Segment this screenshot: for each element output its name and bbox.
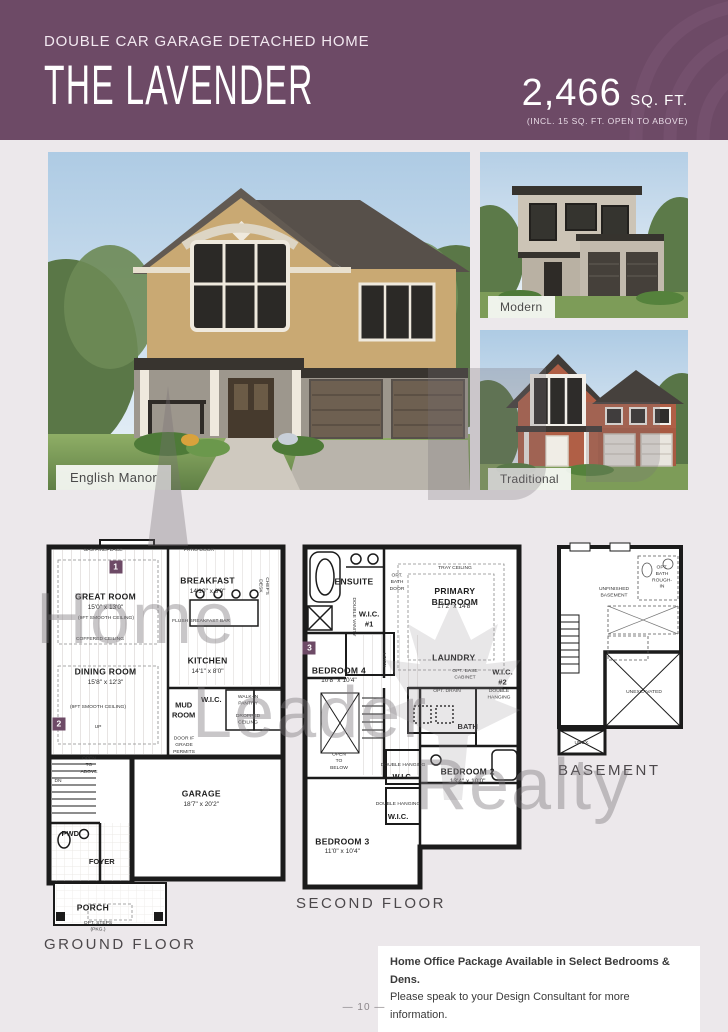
plan-label: OPT. BATH DOOR [390,573,405,592]
plan-label: UNFINISHED BASEMENT [599,587,629,600]
plan-label: FLUSH BREAKFAST BAR [172,619,230,625]
plan-label: TRAY CEILING [438,566,472,572]
plan-label: 1 [109,560,122,573]
plan-label: OPT. BATH ROUGH-IN [651,565,674,591]
plan-label: (9FT SMOOTH CEILING) [70,704,126,710]
plan-label: OPT. DRAIN [433,689,461,695]
plan-label: GAS FIREPLACE [83,548,122,554]
basement-caption: BASEMENT [558,762,661,779]
plan-label: W.I.C. [201,696,221,706]
sqft-unit: SQ. FT. [630,92,688,109]
plan-label: UNEX. [575,741,590,747]
plan-label: 3 [303,642,316,655]
plan-label: DN [54,779,61,785]
plan-label: DOUBLE HANGING [487,689,511,702]
plan-label: FOYER [89,857,115,867]
sqft-value: 2,466 [522,72,622,114]
ground-floor-caption: GROUND FLOOR [44,936,197,953]
note-line-1: Home Office Package Available in Select … [390,954,688,989]
plan-label: 14'1" x 8'0" [192,667,224,675]
plan-type-subtitle: DOUBLE CAR GARAGE DETACHED HOME [44,33,369,50]
sqft-note: (INCL. 15 SQ. FT. OPEN TO ABOVE) [527,116,688,126]
elevation-label: Traditional [488,468,571,490]
plan-label: 15'0" x 13'0" [88,604,124,612]
plan-label: PORCH [77,902,109,913]
modern-rendering: Modern [480,152,688,318]
second-floor-plan: ENSUITEOPT. BATH DOORTRAY CEILINGPRIMARY… [296,538,528,898]
ground-floor-labels: GAS FIREPLACEPATIO DOOR1GREAT ROOM15'0" … [40,538,292,938]
plan-label: DOUBLE HANGING [380,762,425,768]
plan-label: DINING ROOM [75,666,137,677]
plan-label: W.I.C. #2 [490,667,516,687]
english-manor-rendering: English Manor [48,152,470,490]
english-manor-illustration [48,152,470,490]
plan-label: PRIMARY BEDROOM [418,586,491,608]
modern-illustration [480,152,688,318]
plan-label: BEDROOM 4 [312,666,366,677]
page-title: THE LAVENDER [44,52,314,117]
plan-label: COFFERED CEILING [76,636,124,642]
plan-label: 13'4" x 10'0" [450,778,486,786]
page-number: — 10 — [0,1002,728,1013]
plan-label: BEDROOM 3 [315,836,369,847]
plan-label: 17'2" x 14'8" [437,603,473,611]
plan-label: MUD ROOM [172,700,195,720]
second-floor-labels: ENSUITEOPT. BATH DOORTRAY CEILINGPRIMARY… [296,538,528,898]
square-footage: 2,466 SQ. FT. [522,72,688,115]
plan-label: DROPPED CEILING [230,713,266,726]
plan-label: PATIO DOOR [184,548,214,554]
plan-label: LINEN [380,653,386,667]
plan-label: DOUBLE HANGING [376,802,421,808]
basement-plan: UNFINISHED BASEMENTOPT. BATH ROUGH-INUNE… [550,540,690,762]
plan-label: 14'10" x 8'0" [190,588,226,596]
plan-label: OPEN TO BELOW [330,752,348,771]
home-office-note: Home Office Package Available in Select … [378,946,700,1032]
traditional-rendering: Traditional [480,330,688,490]
plan-label: OPT. BASE CABINET [453,668,478,681]
plan-label: PWD [61,829,79,839]
plan-label: GARAGE [182,788,221,799]
second-floor-caption: SECOND FLOOR [296,895,446,912]
plan-label: 2 [52,717,65,730]
plan-label: CHEF'S DESK [257,574,270,598]
plan-label: BEDROOM 2 [441,766,495,777]
plan-label: 11'0" x 10'4" [325,848,360,856]
plan-label: 18'7" x 20'2" [183,801,219,809]
plan-label: BREAKFAST [180,576,235,587]
elevation-label: English Manor [56,465,171,490]
plan-label: UP [95,725,102,731]
plan-label: W.I.C. [388,812,408,822]
plan-label: UNEXCAVATED [626,690,662,696]
plan-label: LAUNDRY [432,652,475,663]
plan-label: WALK-IN PANTRY [238,695,258,708]
plan-label: W.I.C. #1 [359,609,379,629]
plan-label: W.I.C. [393,773,413,783]
plan-label: ENSUITE [335,576,374,587]
plan-label: BATH [458,722,478,732]
header-band: DOUBLE CAR GARAGE DETACHED HOME THE LAVE… [0,0,728,140]
plan-label: DOOR IF GRADE PERMITS [173,736,195,755]
plan-label: KITCHEN [188,656,228,667]
plan-label: DOUBLE VANITY [350,598,356,637]
plan-label: 10'8" x 10'4" [321,677,357,685]
plan-label: 15'8" x 12'3" [88,679,124,687]
plan-label: OPEN TO ABOVE [81,756,98,775]
elevation-label: Modern [488,296,555,318]
plan-label: OPT. STEPS (PKG.) [84,920,112,933]
plan-label: (9FT SMOOTH CEILING) [78,616,134,622]
basement-labels: UNFINISHED BASEMENTOPT. BATH ROUGH-INUNE… [550,540,690,762]
plan-label: GREAT ROOM [75,592,136,603]
ground-floor-plan: GAS FIREPLACEPATIO DOOR1GREAT ROOM15'0" … [40,538,292,938]
traditional-illustration [480,330,688,490]
